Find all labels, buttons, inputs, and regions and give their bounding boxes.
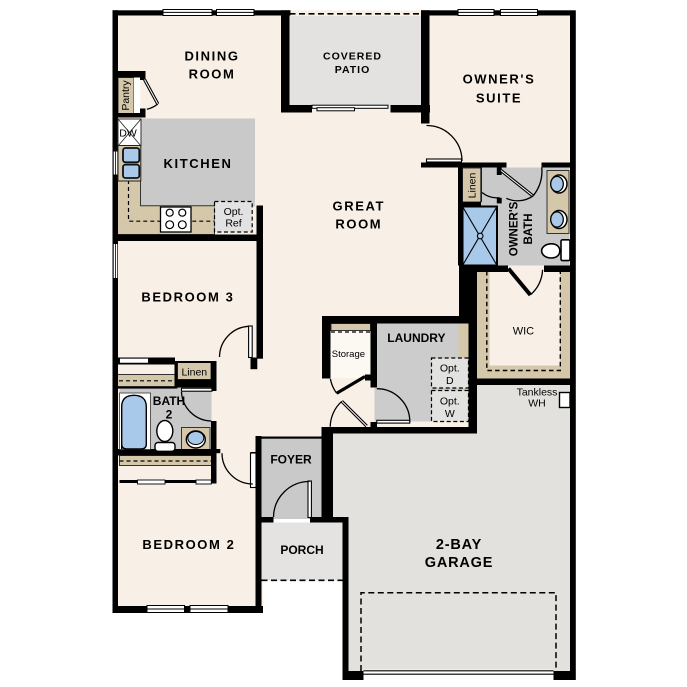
- svg-text:BATH: BATH: [523, 213, 535, 244]
- svg-text:Opt.: Opt.: [440, 363, 460, 375]
- svg-text:Opt.: Opt.: [224, 206, 244, 218]
- svg-text:ROOM: ROOM: [335, 217, 382, 232]
- svg-text:Linen: Linen: [181, 367, 207, 379]
- svg-text:Linen: Linen: [467, 173, 479, 199]
- svg-text:Storage: Storage: [332, 349, 365, 360]
- svg-text:BATH: BATH: [153, 394, 185, 408]
- svg-text:Pantry: Pantry: [120, 80, 132, 111]
- svg-text:DINING: DINING: [184, 49, 239, 64]
- svg-text:GREAT: GREAT: [333, 199, 386, 214]
- svg-text:COVERED: COVERED: [323, 51, 382, 63]
- svg-text:2: 2: [166, 408, 173, 422]
- svg-text:ROOM: ROOM: [189, 67, 236, 82]
- svg-text:WIC: WIC: [513, 326, 534, 338]
- svg-text:OWNER'S: OWNER'S: [463, 72, 536, 87]
- svg-text:KITCHEN: KITCHEN: [164, 156, 233, 171]
- svg-text:2-BAY: 2-BAY: [436, 537, 482, 553]
- svg-text:Opt.: Opt.: [440, 396, 460, 408]
- svg-text:PATIO: PATIO: [335, 64, 371, 76]
- svg-text:W: W: [445, 408, 455, 420]
- svg-text:GARAGE: GARAGE: [425, 555, 493, 571]
- svg-text:BEDROOM 2: BEDROOM 2: [142, 537, 235, 552]
- svg-text:D: D: [446, 375, 454, 387]
- svg-text:PORCH: PORCH: [280, 543, 323, 557]
- svg-text:Ref: Ref: [225, 218, 241, 230]
- svg-text:OWNER'S: OWNER'S: [508, 201, 520, 256]
- svg-text:WH: WH: [528, 398, 546, 410]
- svg-text:BEDROOM 3: BEDROOM 3: [141, 290, 234, 305]
- svg-text:DW: DW: [119, 128, 137, 140]
- svg-text:FOYER: FOYER: [270, 452, 312, 466]
- svg-text:SUITE: SUITE: [476, 91, 522, 106]
- svg-text:LAUNDRY: LAUNDRY: [387, 331, 445, 345]
